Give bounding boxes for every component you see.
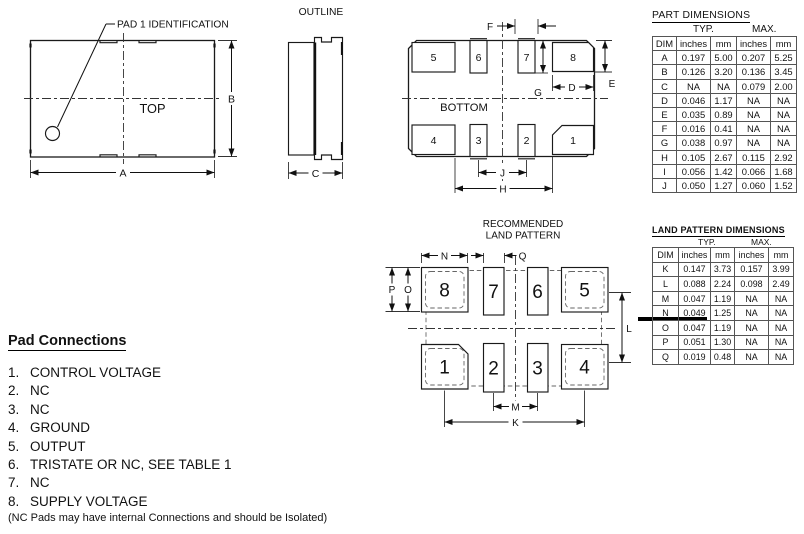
outline-title: OUTLINE bbox=[299, 7, 344, 18]
table-row: K0.1473.730.1573.99 bbox=[653, 262, 794, 277]
cell: 0.079 bbox=[737, 79, 771, 93]
cell: 0.047 bbox=[679, 320, 711, 335]
land-pad-number: 5 bbox=[579, 281, 590, 302]
bottom-view-label: BOTTOM bbox=[440, 102, 488, 114]
pad-number: 2 bbox=[524, 135, 530, 147]
list-item: 7.NC bbox=[8, 475, 428, 493]
dim-label-e: E bbox=[609, 79, 616, 90]
cell: J bbox=[653, 178, 677, 192]
dim-label-p: P bbox=[389, 285, 396, 296]
dim-label-j: J bbox=[500, 169, 505, 180]
part-dimensions-table: PART DIMENSIONS TYP. MAX. DIM inches mm … bbox=[652, 10, 800, 193]
dim-label-l: L bbox=[626, 324, 632, 335]
col-header: inches bbox=[679, 248, 711, 263]
dim-label-h: H bbox=[499, 185, 506, 196]
table-row: D0.0461.17NANA bbox=[653, 93, 797, 107]
land-table-group-headers: TYP. MAX. bbox=[652, 236, 794, 246]
table-row: CNANA0.0792.00 bbox=[653, 79, 797, 93]
cell: NA bbox=[769, 350, 794, 365]
cell: NA bbox=[735, 320, 769, 335]
part-table-grid: DIM inches mm inches mm A0.1975.000.2075… bbox=[652, 36, 797, 193]
cell: 0.197 bbox=[677, 51, 711, 65]
cell: B bbox=[653, 65, 677, 79]
table-row: I0.0561.420.0661.68 bbox=[653, 164, 797, 178]
pad1-callout-label: PAD 1 IDENTIFICATION bbox=[117, 20, 229, 31]
cell: 0.019 bbox=[679, 350, 711, 365]
land-table-title: LAND PATTERN DIMENSIONS bbox=[652, 225, 794, 235]
col-header: mm bbox=[771, 37, 797, 51]
cell: 0.136 bbox=[737, 65, 771, 79]
col-header: DIM bbox=[653, 248, 679, 263]
cell: Q bbox=[653, 350, 679, 365]
cell: 0.105 bbox=[677, 150, 711, 164]
cell: 0.050 bbox=[677, 178, 711, 192]
item-number: 6. bbox=[8, 457, 30, 472]
dimension-n: N bbox=[422, 250, 468, 264]
cell: N bbox=[653, 306, 679, 321]
dimension-a: A bbox=[31, 160, 215, 180]
land-pad-number: 3 bbox=[532, 359, 543, 380]
dimension-g: G bbox=[534, 41, 548, 100]
item-number: 8. bbox=[8, 494, 30, 509]
pad1-marker-circle bbox=[46, 127, 60, 141]
table-row: J0.0501.270.0601.52 bbox=[653, 178, 797, 192]
table-header-row: DIM inches mm inches mm bbox=[653, 37, 797, 51]
col-header: mm bbox=[711, 37, 737, 51]
cell: H bbox=[653, 150, 677, 164]
cell: NA bbox=[771, 136, 797, 150]
cell: 2.49 bbox=[769, 277, 794, 292]
typ-header: TYP. bbox=[693, 24, 714, 35]
land-table-grid: DIM inches mm inches mm K0.1473.730.1573… bbox=[652, 247, 794, 365]
cell: 3.20 bbox=[711, 65, 737, 79]
table-row: N0.0491.25NANA bbox=[653, 306, 794, 321]
cell: O bbox=[653, 320, 679, 335]
cell: 1.42 bbox=[711, 164, 737, 178]
cell: NA bbox=[737, 93, 771, 107]
cell: NA bbox=[711, 79, 737, 93]
list-item: 1.CONTROL VOLTAGE bbox=[8, 365, 428, 383]
pad-number: 3 bbox=[476, 135, 482, 147]
table-row: O0.0471.19NANA bbox=[653, 320, 794, 335]
cell: 1.19 bbox=[711, 291, 735, 306]
cell: NA bbox=[771, 93, 797, 107]
cell: NA bbox=[737, 107, 771, 121]
dim-label-f: F bbox=[487, 22, 493, 33]
cell: NA bbox=[735, 350, 769, 365]
cell: 0.207 bbox=[737, 51, 771, 65]
item-label: NC bbox=[30, 475, 50, 490]
pad-number: 7 bbox=[524, 52, 530, 64]
cell: K bbox=[653, 262, 679, 277]
pad-connections-list: 1.CONTROL VOLTAGE 2.NC 3.NC 4.GROUND 5.O… bbox=[8, 365, 428, 512]
part-table-title: PART DIMENSIONS bbox=[652, 10, 800, 21]
outline-view-drawing: OUTLINE C bbox=[270, 0, 400, 200]
list-item: 3.NC bbox=[8, 402, 428, 420]
cell: NA bbox=[771, 107, 797, 121]
cell: 0.016 bbox=[677, 122, 711, 136]
cell: E bbox=[653, 107, 677, 121]
cell: 0.157 bbox=[735, 262, 769, 277]
typ-header: TYP. bbox=[698, 237, 716, 247]
list-item: 5.OUTPUT bbox=[8, 439, 428, 457]
dim-label-q: Q bbox=[519, 252, 527, 263]
dimension-b: B bbox=[218, 41, 238, 157]
cell: 0.126 bbox=[677, 65, 711, 79]
item-label: SUPPLY VOLTAGE bbox=[30, 494, 148, 509]
list-item: 4.GROUND bbox=[8, 420, 428, 438]
outline-body bbox=[289, 38, 343, 160]
dimension-f: F bbox=[487, 19, 556, 34]
table-row: A0.1975.000.2075.25 bbox=[653, 51, 797, 65]
list-item: 8.SUPPLY VOLTAGE bbox=[8, 494, 428, 512]
list-item: 6.TRISTATE OR NC, SEE TABLE 1 bbox=[8, 457, 428, 475]
cell: 3.45 bbox=[771, 65, 797, 79]
max-header: MAX. bbox=[751, 237, 772, 247]
cell: 0.088 bbox=[679, 277, 711, 292]
dim-label-b: B bbox=[228, 94, 235, 106]
cell: 1.17 bbox=[711, 93, 737, 107]
dim-label-o: O bbox=[404, 285, 412, 296]
dim-label-g: G bbox=[534, 88, 542, 99]
cell: F bbox=[653, 122, 677, 136]
pad-number: 5 bbox=[431, 52, 437, 64]
pad-number: 8 bbox=[570, 52, 576, 64]
table-row: L0.0882.240.0982.49 bbox=[653, 277, 794, 292]
dimension-l: L bbox=[609, 293, 632, 363]
item-number: 7. bbox=[8, 475, 30, 490]
dim-label-d: D bbox=[568, 83, 575, 94]
cell: 1.27 bbox=[711, 178, 737, 192]
cell: 0.056 bbox=[677, 164, 711, 178]
cell: C bbox=[653, 79, 677, 93]
col-header: inches bbox=[737, 37, 771, 51]
cell: NA bbox=[677, 79, 711, 93]
cell: 0.115 bbox=[737, 150, 771, 164]
cell: L bbox=[653, 277, 679, 292]
col-header: inches bbox=[677, 37, 711, 51]
cell: G bbox=[653, 136, 677, 150]
datasheet-page: PAD 1 IDENTIFICATION TOP B A OUTLINE C bbox=[0, 0, 804, 534]
cell: 0.066 bbox=[737, 164, 771, 178]
dimension-d: D bbox=[553, 75, 594, 94]
cell: NA bbox=[769, 320, 794, 335]
cell: 1.52 bbox=[771, 178, 797, 192]
land-pad-number: 8 bbox=[439, 281, 450, 302]
cell: NA bbox=[769, 291, 794, 306]
dim-label-m: M bbox=[511, 403, 519, 414]
item-number: 4. bbox=[8, 420, 30, 435]
dim-label-c: C bbox=[312, 168, 320, 180]
cell: 2.92 bbox=[771, 150, 797, 164]
dim-label-a: A bbox=[119, 168, 126, 180]
cell: NA bbox=[735, 306, 769, 321]
table-row: P0.0511.30NANA bbox=[653, 335, 794, 350]
item-number: 1. bbox=[8, 365, 30, 380]
land-pad-number: 6 bbox=[532, 282, 543, 303]
land-pad-number: 4 bbox=[579, 358, 590, 379]
land-pads: 8 7 6 5 1 2 3 4 bbox=[422, 268, 609, 393]
cell: 2.67 bbox=[711, 150, 737, 164]
cell: 0.89 bbox=[711, 107, 737, 121]
cell: 0.051 bbox=[679, 335, 711, 350]
land-pad-number: 2 bbox=[488, 359, 499, 380]
land-pattern-dimensions-table: LAND PATTERN DIMENSIONS TYP. MAX. DIM in… bbox=[652, 225, 794, 365]
list-item: 2.NC bbox=[8, 383, 428, 401]
cell: NA bbox=[737, 122, 771, 136]
land-pad-number: 7 bbox=[488, 282, 499, 303]
item-label: OUTPUT bbox=[30, 439, 86, 454]
cell: 0.97 bbox=[711, 136, 737, 150]
cell: 3.73 bbox=[711, 262, 735, 277]
cell: D bbox=[653, 93, 677, 107]
dim-label-n: N bbox=[441, 252, 448, 263]
cell: NA bbox=[771, 122, 797, 136]
dimension-o: O bbox=[402, 268, 415, 312]
dimension-q: Q bbox=[471, 252, 527, 264]
col-header: DIM bbox=[653, 37, 677, 51]
cell: 0.047 bbox=[679, 291, 711, 306]
table-row: F0.0160.41NANA bbox=[653, 122, 797, 136]
cell: 0.060 bbox=[737, 178, 771, 192]
cell: 3.99 bbox=[769, 262, 794, 277]
dim-label-k: K bbox=[512, 418, 519, 429]
land-pattern-title-line2: LAND PATTERN bbox=[486, 231, 561, 242]
land-pattern-title-line1: RECOMMENDED bbox=[483, 219, 564, 230]
cell: 1.30 bbox=[711, 335, 735, 350]
cell: 0.038 bbox=[677, 136, 711, 150]
cell: 5.25 bbox=[771, 51, 797, 65]
col-header: mm bbox=[711, 248, 735, 263]
table-header-row: DIM inches mm inches mm bbox=[653, 248, 794, 263]
item-label: GROUND bbox=[30, 420, 90, 435]
cell: P bbox=[653, 335, 679, 350]
item-number: 3. bbox=[8, 402, 30, 417]
table-row: Q0.0190.48NANA bbox=[653, 350, 794, 365]
item-number: 2. bbox=[8, 383, 30, 398]
cell: NA bbox=[735, 291, 769, 306]
cell: I bbox=[653, 164, 677, 178]
pad-number: 1 bbox=[570, 135, 576, 147]
item-label: NC bbox=[30, 383, 50, 398]
pad-connections-note: (NC Pads may have internal Connections a… bbox=[8, 512, 428, 524]
table-row: E0.0350.89NANA bbox=[653, 107, 797, 121]
cell: 0.41 bbox=[711, 122, 737, 136]
cell: 1.19 bbox=[711, 320, 735, 335]
top-view-drawing: PAD 1 IDENTIFICATION TOP B A bbox=[0, 0, 270, 200]
table-row: G0.0380.97NANA bbox=[653, 136, 797, 150]
item-label: TRISTATE OR NC, SEE TABLE 1 bbox=[30, 457, 232, 472]
dimension-c: C bbox=[289, 162, 343, 180]
top-view-label: TOP bbox=[139, 101, 165, 116]
cell: 0.098 bbox=[735, 277, 769, 292]
item-label: CONTROL VOLTAGE bbox=[30, 365, 161, 380]
cell: NA bbox=[737, 136, 771, 150]
dimension-e: E bbox=[595, 41, 616, 91]
table-row: B0.1263.200.1363.45 bbox=[653, 65, 797, 79]
table-row: H0.1052.670.1152.92 bbox=[653, 150, 797, 164]
cell: 0.48 bbox=[711, 350, 735, 365]
cell: 0.049 bbox=[679, 306, 711, 321]
max-header: MAX. bbox=[752, 24, 776, 35]
bottom-view-drawing: BOTTOM 5 6 7 8 4 3 2 1 F G D E bbox=[400, 0, 660, 210]
land-pad-number: 1 bbox=[439, 358, 450, 379]
cell: NA bbox=[735, 335, 769, 350]
cell: 5.00 bbox=[711, 51, 737, 65]
cell: NA bbox=[769, 335, 794, 350]
part-table-group-headers: TYP. MAX. bbox=[652, 23, 800, 35]
pad-connections-section: Pad Connections 1.CONTROL VOLTAGE 2.NC 3… bbox=[8, 333, 428, 524]
cell: 1.25 bbox=[711, 306, 735, 321]
col-header: inches bbox=[735, 248, 769, 263]
pad-connections-title: Pad Connections bbox=[8, 333, 428, 349]
cell: NA bbox=[769, 306, 794, 321]
cell: 0.147 bbox=[679, 262, 711, 277]
pad-number: 4 bbox=[431, 135, 437, 147]
cell: M bbox=[653, 291, 679, 306]
cell: 0.046 bbox=[677, 93, 711, 107]
pad-number: 6 bbox=[476, 52, 482, 64]
item-label: NC bbox=[30, 402, 50, 417]
cell: 1.68 bbox=[771, 164, 797, 178]
table-row: M0.0471.19NANA bbox=[653, 291, 794, 306]
cell: A bbox=[653, 51, 677, 65]
col-header: mm bbox=[769, 248, 794, 263]
cell: 2.00 bbox=[771, 79, 797, 93]
cell: 2.24 bbox=[711, 277, 735, 292]
item-number: 5. bbox=[8, 439, 30, 454]
top-view-body: TOP bbox=[24, 33, 222, 164]
cell: 0.035 bbox=[677, 107, 711, 121]
